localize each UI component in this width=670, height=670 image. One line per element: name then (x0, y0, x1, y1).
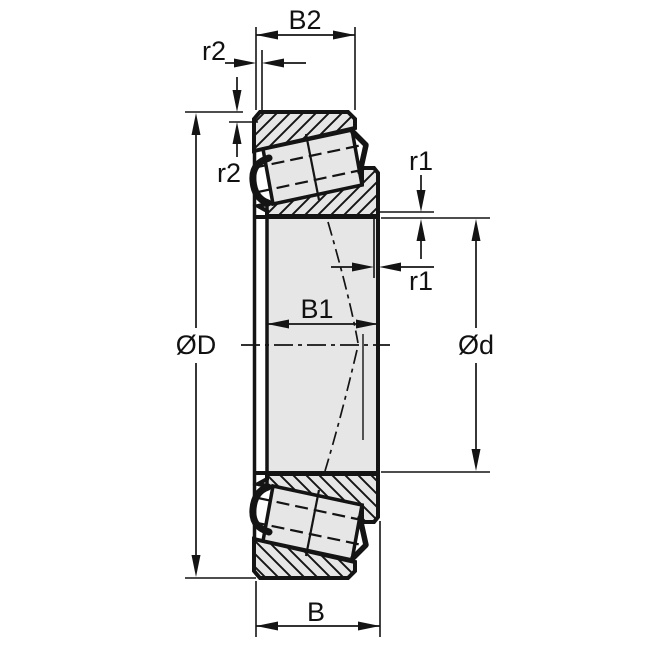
dim-cup-chamfer-top: r2 (202, 36, 306, 110)
arrowhead (233, 122, 242, 144)
bearing-cross-section-svg: B2 r2 r2 ØD r1 (0, 0, 670, 670)
arrowhead (262, 59, 284, 68)
arrowhead (256, 31, 278, 40)
label-total-width: B (307, 597, 325, 627)
arrowhead (417, 190, 426, 212)
dim-bore-diameter: Ød (381, 218, 494, 472)
arrowhead (234, 59, 256, 68)
arrowhead (358, 622, 380, 631)
label-cup-chamfer-top: r2 (202, 36, 226, 66)
arrowhead (472, 449, 481, 471)
arrowhead (417, 219, 426, 241)
label-cone-chamfer-lower: r1 (409, 266, 433, 296)
label-outer-diameter: ØD (176, 330, 217, 360)
dim-cone-chamfer-upper: r1 (379, 146, 434, 259)
arrowhead (192, 555, 201, 577)
arrowhead (379, 263, 401, 272)
arrowhead (333, 31, 355, 40)
label-bore-diameter: Ød (458, 330, 494, 360)
label-cup-width: B2 (288, 5, 321, 35)
arrowhead (192, 113, 201, 135)
arrowhead (472, 219, 481, 241)
label-cone-chamfer-upper: r1 (409, 146, 433, 176)
bearing-drawing: B2 r2 r2 ØD r1 (0, 0, 670, 670)
label-cone-width: B1 (300, 294, 333, 324)
label-cup-chamfer-side: r2 (217, 158, 241, 188)
arrowhead (256, 622, 278, 631)
arrowhead (233, 90, 242, 112)
dim-cup-width: B2 (256, 5, 355, 110)
